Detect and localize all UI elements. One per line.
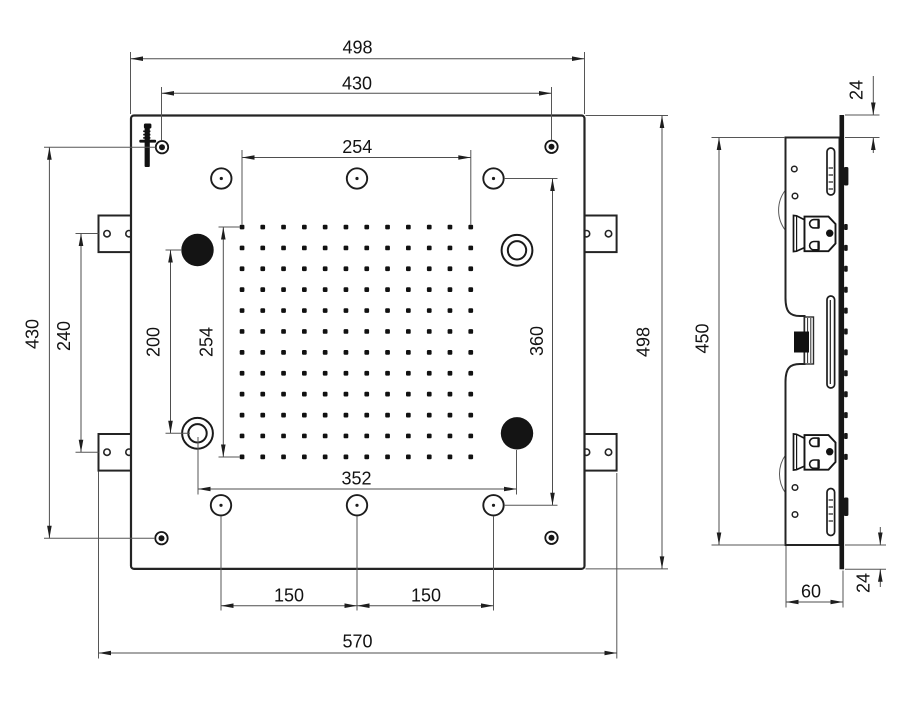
svg-text:430: 430: [342, 74, 372, 94]
svg-text:240: 240: [54, 321, 74, 351]
svg-text:570: 570: [342, 632, 372, 652]
svg-text:150: 150: [274, 586, 304, 606]
svg-text:430: 430: [23, 319, 43, 349]
svg-text:200: 200: [144, 327, 164, 357]
svg-text:450: 450: [693, 323, 713, 353]
svg-text:254: 254: [197, 327, 217, 357]
svg-text:60: 60: [801, 582, 821, 602]
svg-text:24: 24: [854, 573, 874, 593]
svg-text:150: 150: [411, 586, 441, 606]
svg-text:24: 24: [847, 80, 867, 100]
svg-text:360: 360: [527, 326, 547, 356]
svg-text:498: 498: [342, 38, 372, 58]
svg-text:498: 498: [634, 327, 654, 357]
svg-text:254: 254: [342, 137, 372, 157]
svg-text:352: 352: [341, 469, 371, 489]
